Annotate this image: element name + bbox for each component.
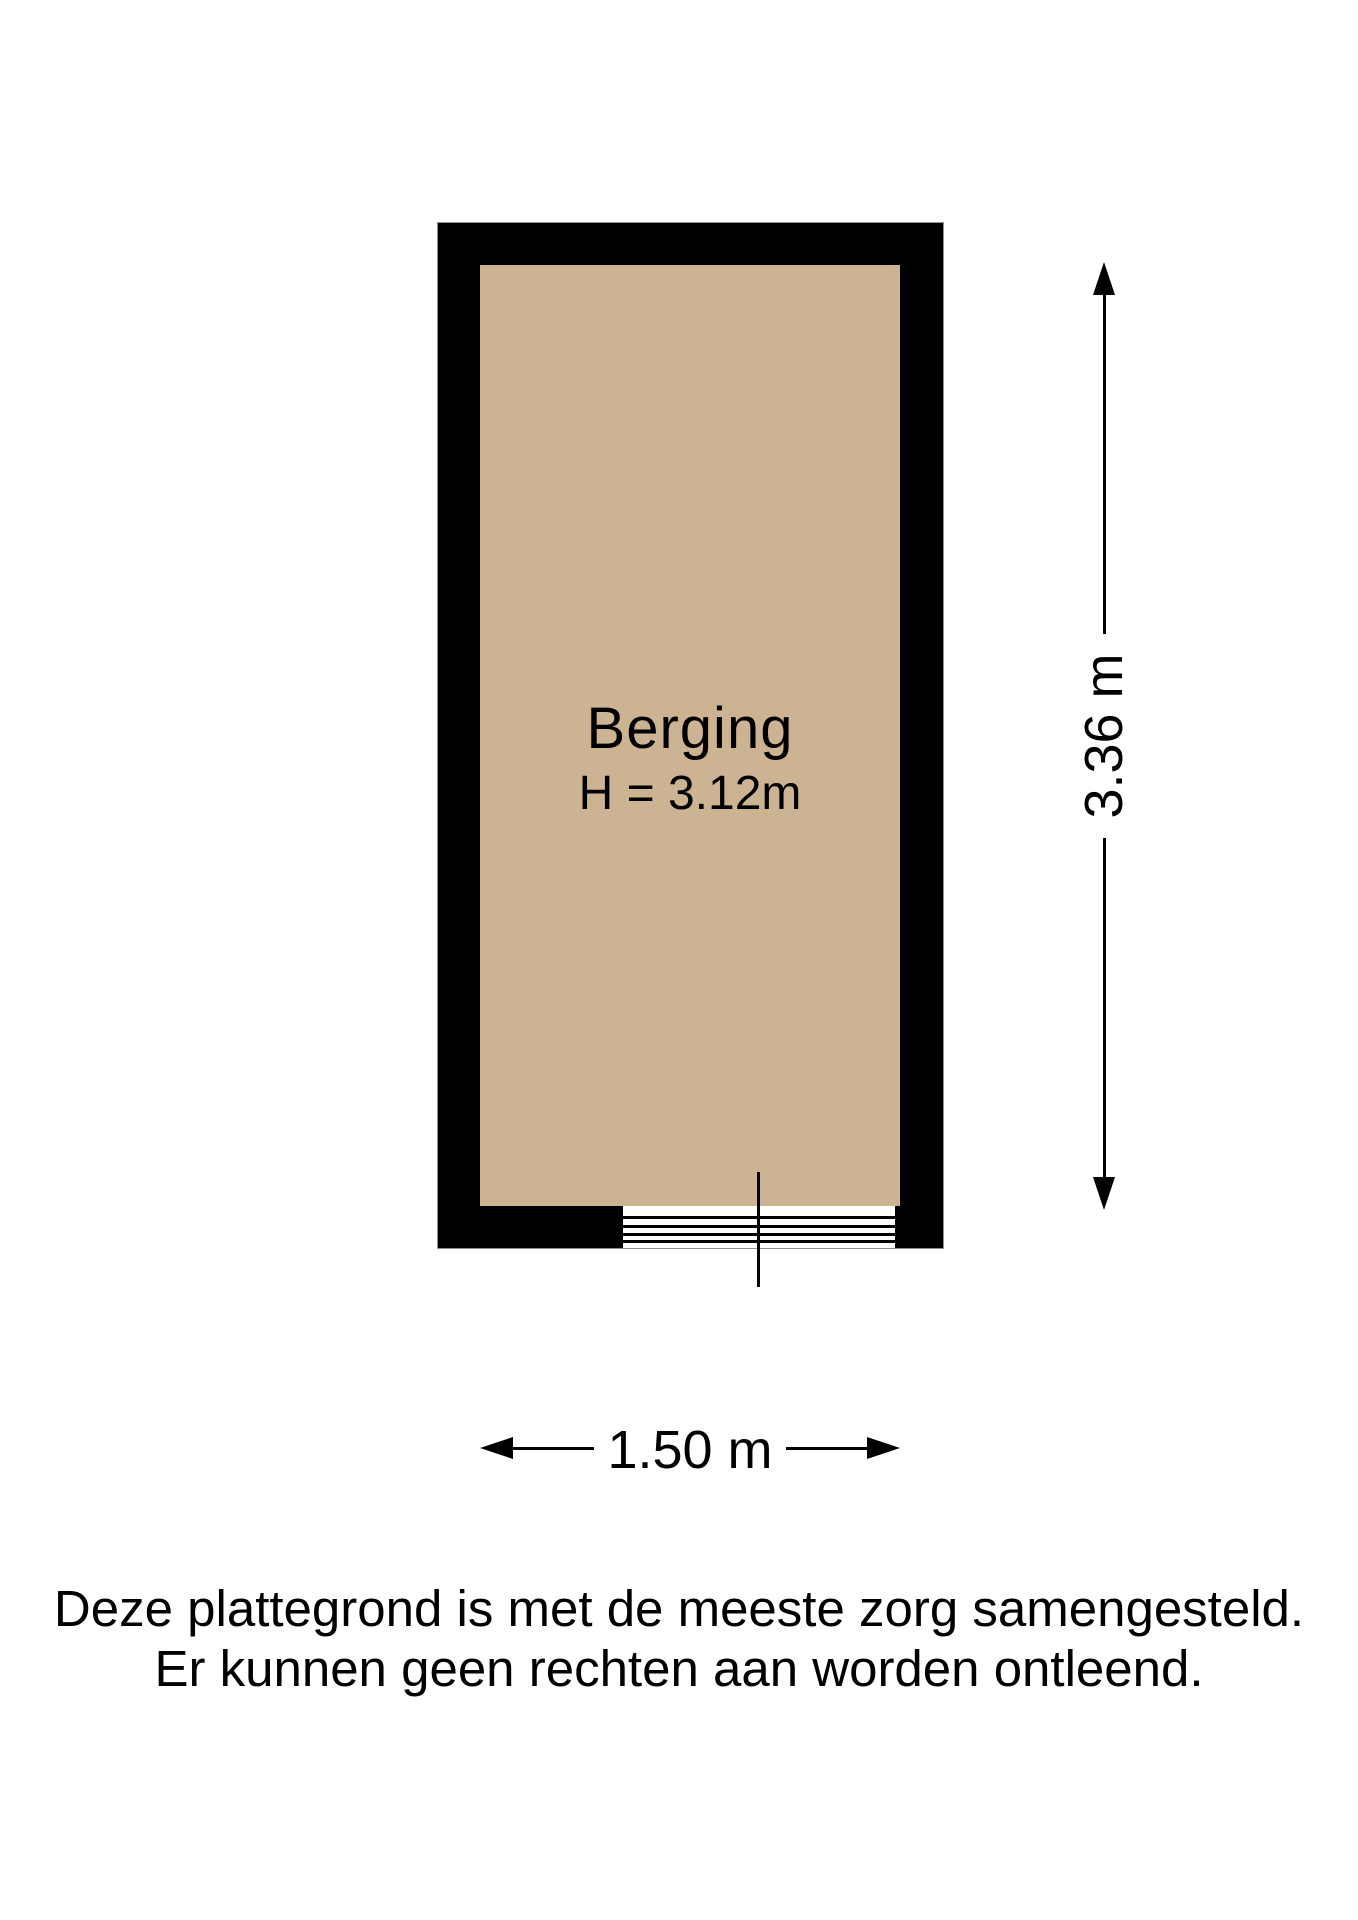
width-dimension-line-right [786,1447,870,1450]
door-line [757,1172,760,1287]
arrow-up-icon [1093,262,1115,295]
disclaimer-line-2: Er kunnen geen rechten aan worden ontlee… [0,1639,1358,1699]
height-dimension-line-top [1103,293,1106,634]
arrow-right-icon [867,1437,900,1459]
width-dimension-line-left [510,1447,594,1450]
width-dimension-label: 1.50 m [607,1423,772,1477]
room-name-label: Berging [587,700,794,758]
arrow-left-icon [480,1437,513,1459]
height-dimension-label: 3.36 m [1077,653,1131,818]
arrow-down-icon [1093,1177,1115,1210]
height-dimension-line-bottom [1103,838,1106,1178]
disclaimer-line-1: Deze plattegrond is met de meeste zorg s… [0,1579,1358,1639]
floorplan-canvas: Berging H = 3.12m 3.36 m 1.50 m Deze pla… [0,0,1358,1920]
disclaimer: Deze plattegrond is met de meeste zorg s… [0,1579,1358,1699]
room-ceiling-height-label: H = 3.12m [579,770,802,818]
